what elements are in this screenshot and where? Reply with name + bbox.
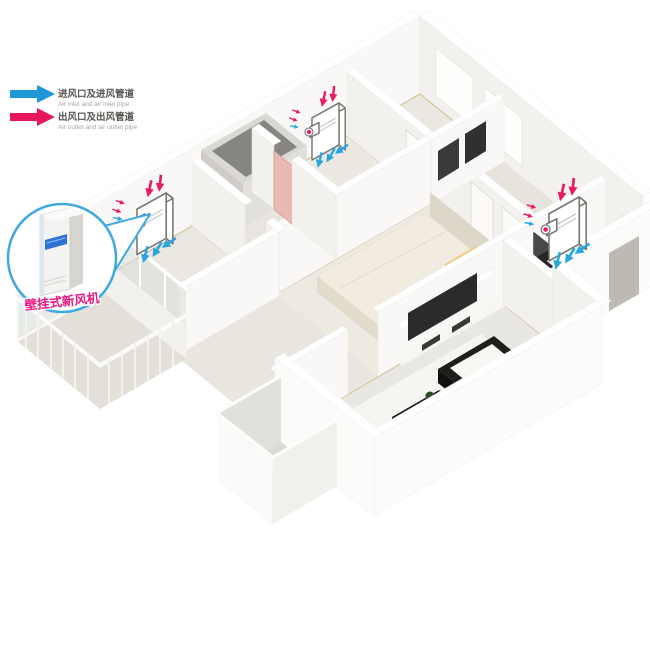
outlet-arrow-icon xyxy=(10,108,55,126)
legend-inlet-zh: 进风口及进风管道 xyxy=(58,88,135,100)
legend-outlet-en: Air outlet and air outlet pipe xyxy=(58,124,138,131)
inlet-arrow-icon xyxy=(10,85,55,103)
legend: 进风口及进风管道 Air inlet and air inlet pipe 出风… xyxy=(10,85,138,131)
product-image xyxy=(40,208,83,296)
fresh-air-system-diagram: 进风口及进风管道 Air inlet and air inlet pipe 出风… xyxy=(0,0,650,656)
isometric-floorplan-scene: 进风口及进风管道 Air inlet and air inlet pipe 出风… xyxy=(0,0,650,656)
legend-inlet-en: Air inlet and air inlet pipe xyxy=(58,101,130,108)
legend-outlet-zh: 出风口及出风管道 xyxy=(58,111,135,123)
